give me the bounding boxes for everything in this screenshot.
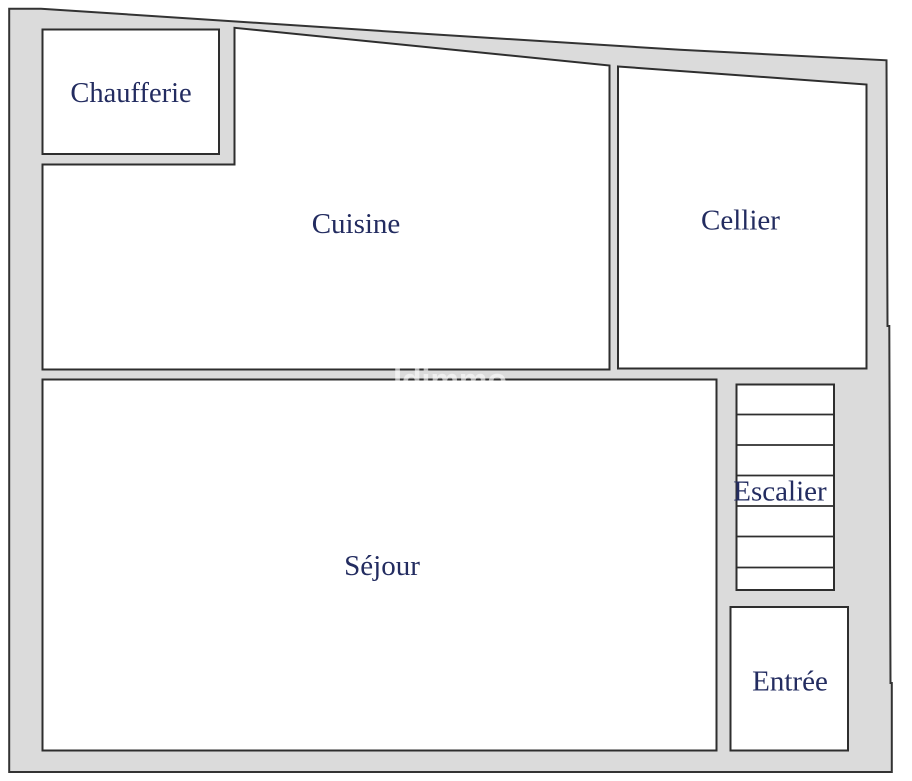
svg-text:Séjour: Séjour bbox=[344, 550, 420, 582]
svg-text:Cellier: Cellier bbox=[701, 205, 780, 237]
svg-text:Idimmo: Idimmo bbox=[393, 362, 507, 398]
svg-text:Entrée: Entrée bbox=[752, 666, 828, 698]
svg-text:Chaufferie: Chaufferie bbox=[70, 78, 191, 109]
svg-text:Escalier: Escalier bbox=[733, 476, 827, 508]
svg-text:Cuisine: Cuisine bbox=[312, 208, 401, 240]
